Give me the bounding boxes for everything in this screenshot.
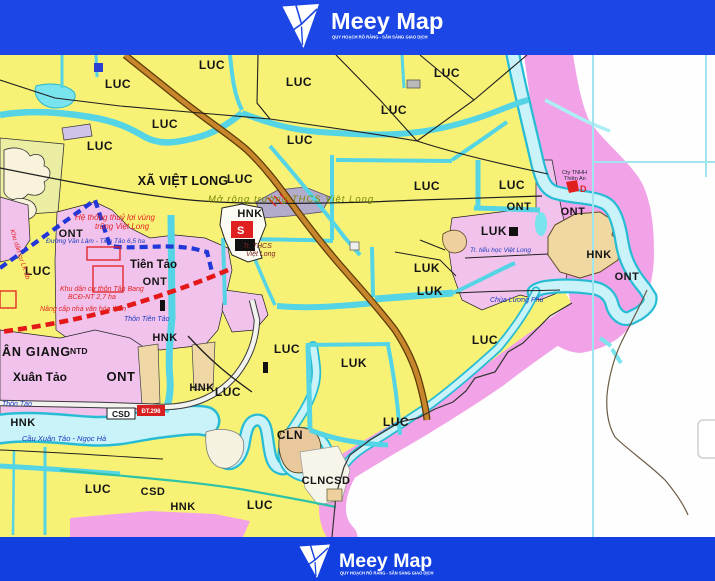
svg-text:BCĐ-NT 2,7 ha: BCĐ-NT 2,7 ha <box>68 294 116 301</box>
svg-text:Việt Long: Việt Long <box>246 251 276 258</box>
svg-text:LUC: LUC <box>414 179 440 193</box>
svg-text:CSD: CSD <box>141 486 166 498</box>
svg-text:LUK: LUK <box>414 261 440 275</box>
svg-text:trũng Việt Long: trũng Việt Long <box>95 222 150 231</box>
svg-text:ONT: ONT <box>143 276 168 288</box>
svg-text:LUC: LUC <box>85 482 111 496</box>
svg-text:CLNCSD: CLNCSD <box>302 475 351 487</box>
svg-text:LUC: LUC <box>274 342 300 356</box>
svg-text:Meey Map: Meey Map <box>339 550 432 572</box>
svg-text:CLN: CLN <box>277 428 303 442</box>
svg-text:Cầu Xuân Tảo - Ngọc Hà: Cầu Xuân Tảo - Ngọc Hà <box>22 434 106 443</box>
svg-text:Meey Map: Meey Map <box>331 8 443 34</box>
svg-text:HNK: HNK <box>170 501 195 513</box>
svg-text:ONT: ONT <box>507 201 532 213</box>
svg-text:LUC: LUC <box>227 172 253 186</box>
svg-text:LUC: LUC <box>152 117 178 131</box>
svg-text:LUK: LUK <box>417 284 443 298</box>
svg-text:XÃ VIỆT LONG: XÃ VIỆT LONG <box>138 173 229 188</box>
svg-text:LUC: LUC <box>199 58 225 72</box>
svg-text:ONT: ONT <box>561 206 586 218</box>
svg-text:Xuân Tảo: Xuân Tảo <box>13 370 67 384</box>
svg-text:LUC: LUC <box>499 178 525 192</box>
svg-text:ONT: ONT <box>107 369 136 384</box>
svg-text:Tr. tiểu học Việt Long: Tr. tiểu học Việt Long <box>470 246 531 254</box>
svg-text:HNK: HNK <box>237 208 262 220</box>
svg-text:Mở rộng trường THCS Việt Long: Mở rộng trường THCS Việt Long <box>208 194 374 205</box>
svg-text:NTD: NTD <box>70 346 87 356</box>
svg-text:Khu dân cư thôn Tân Bang: Khu dân cư thôn Tân Bang <box>60 286 144 293</box>
svg-text:ĐT.296: ĐT.296 <box>141 409 161 415</box>
svg-text:Tr. THCS: Tr. THCS <box>243 243 272 250</box>
svg-text:LUK: LUK <box>481 224 507 238</box>
svg-text:ONT: ONT <box>615 271 640 283</box>
svg-text:Thiên An: Thiên An <box>564 176 586 182</box>
svg-text:LUC: LUC <box>381 103 407 117</box>
svg-text:LUK: LUK <box>341 356 367 370</box>
svg-text:Hệ thống thuỷ lợi vùng: Hệ thống thuỷ lợi vùng <box>75 213 156 222</box>
svg-text:LUC: LUC <box>383 415 409 429</box>
svg-text:LUC: LUC <box>287 133 313 147</box>
svg-text:Đường Văn Lâm - Tiên Tảo 6,5 h: Đường Văn Lâm - Tiên Tảo 6,5 ha <box>46 237 145 245</box>
svg-text:HNK: HNK <box>586 249 611 261</box>
svg-text:Nâng cấp nhà văn hóa thôn: Nâng cấp nhà văn hóa thôn <box>40 305 126 313</box>
svg-text:QUY HOẠCH RÕ RÀNG - SẴN SÀNG G: QUY HOẠCH RÕ RÀNG - SẴN SÀNG GIAO DỊCH <box>332 35 428 40</box>
svg-text:LUC: LUC <box>286 75 312 89</box>
svg-text:LUC: LUC <box>247 498 273 512</box>
svg-text:Thôn Tiên Tảo: Thôn Tiên Tảo <box>124 315 170 323</box>
svg-text:S: S <box>237 225 244 237</box>
svg-text:CSD: CSD <box>112 409 130 419</box>
svg-text:HNK: HNK <box>152 332 177 344</box>
svg-text:ÂN GIANG: ÂN GIANG <box>2 344 71 359</box>
svg-text:LUC: LUC <box>105 77 131 91</box>
svg-text:HNK: HNK <box>10 417 35 429</box>
svg-text:LUC: LUC <box>87 139 113 153</box>
svg-text:Tiên Tảo: Tiên Tảo <box>130 259 177 271</box>
svg-text:Thôn Tảo: Thôn Tảo <box>2 400 32 408</box>
svg-text:QUY HOẠCH RÕ RÀNG - SẴN SÀNG G: QUY HOẠCH RÕ RÀNG - SẴN SÀNG GIAO DỊCH <box>340 571 433 576</box>
svg-text:LUC: LUC <box>434 66 460 80</box>
svg-text:LUC: LUC <box>215 385 241 399</box>
svg-text:Chùa Lương Phú: Chùa Lương Phú <box>490 297 544 304</box>
svg-text:LUC: LUC <box>472 333 498 347</box>
svg-text:HNK: HNK <box>189 382 214 394</box>
svg-text:D: D <box>580 184 587 194</box>
